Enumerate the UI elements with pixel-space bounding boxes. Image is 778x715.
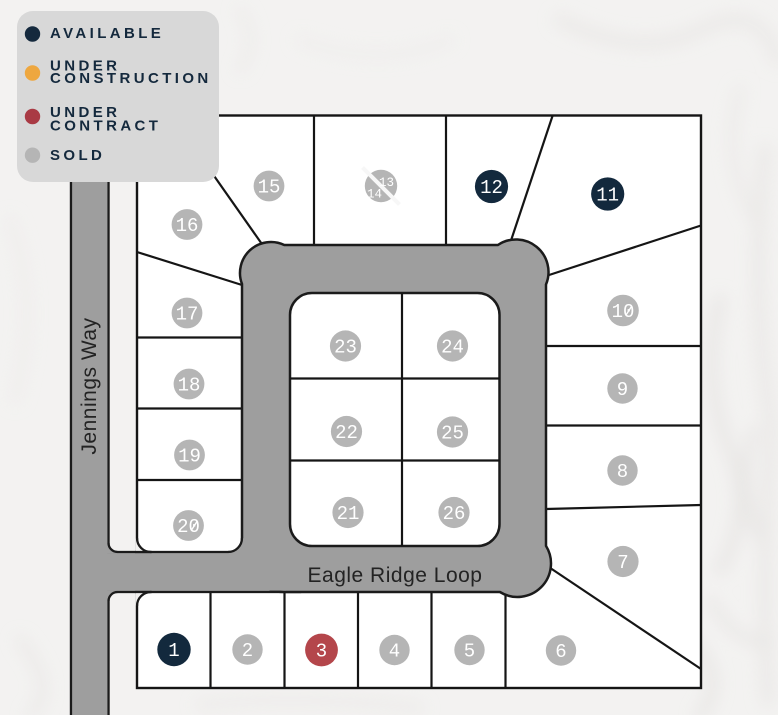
svg-text:Jennings Way: Jennings Way xyxy=(78,317,101,454)
svg-text:16: 16 xyxy=(176,215,199,237)
svg-text:24: 24 xyxy=(441,337,464,359)
svg-text:Eagle Ridge Loop: Eagle Ridge Loop xyxy=(308,564,483,587)
svg-text:1: 1 xyxy=(168,640,179,662)
svg-text:11: 11 xyxy=(596,185,619,207)
svg-text:5: 5 xyxy=(464,641,475,663)
svg-text:6: 6 xyxy=(555,641,566,663)
svg-text:8: 8 xyxy=(617,461,628,483)
svg-text:CONSTRUCTION: CONSTRUCTION xyxy=(50,70,212,87)
svg-text:CONTRACT: CONTRACT xyxy=(50,118,161,135)
svg-text:10: 10 xyxy=(612,301,635,323)
svg-text:AVAILABLE: AVAILABLE xyxy=(50,25,164,42)
svg-text:20: 20 xyxy=(177,516,200,538)
svg-text:17: 17 xyxy=(176,304,199,326)
svg-text:26: 26 xyxy=(443,503,466,525)
svg-text:25: 25 xyxy=(441,423,464,445)
svg-text:12: 12 xyxy=(480,177,503,199)
svg-text:18: 18 xyxy=(178,375,201,397)
svg-text:21: 21 xyxy=(337,503,360,525)
svg-text:15: 15 xyxy=(258,177,281,199)
svg-text:SOLD: SOLD xyxy=(50,147,105,164)
svg-text:3: 3 xyxy=(316,641,327,663)
svg-text:9: 9 xyxy=(617,379,628,401)
svg-text:4: 4 xyxy=(389,641,400,663)
svg-text:23: 23 xyxy=(334,337,357,359)
svg-text:2: 2 xyxy=(242,640,253,662)
svg-text:19: 19 xyxy=(178,446,201,468)
svg-text:14: 14 xyxy=(367,188,382,202)
svg-text:22: 22 xyxy=(335,422,358,444)
svg-text:7: 7 xyxy=(617,552,628,574)
